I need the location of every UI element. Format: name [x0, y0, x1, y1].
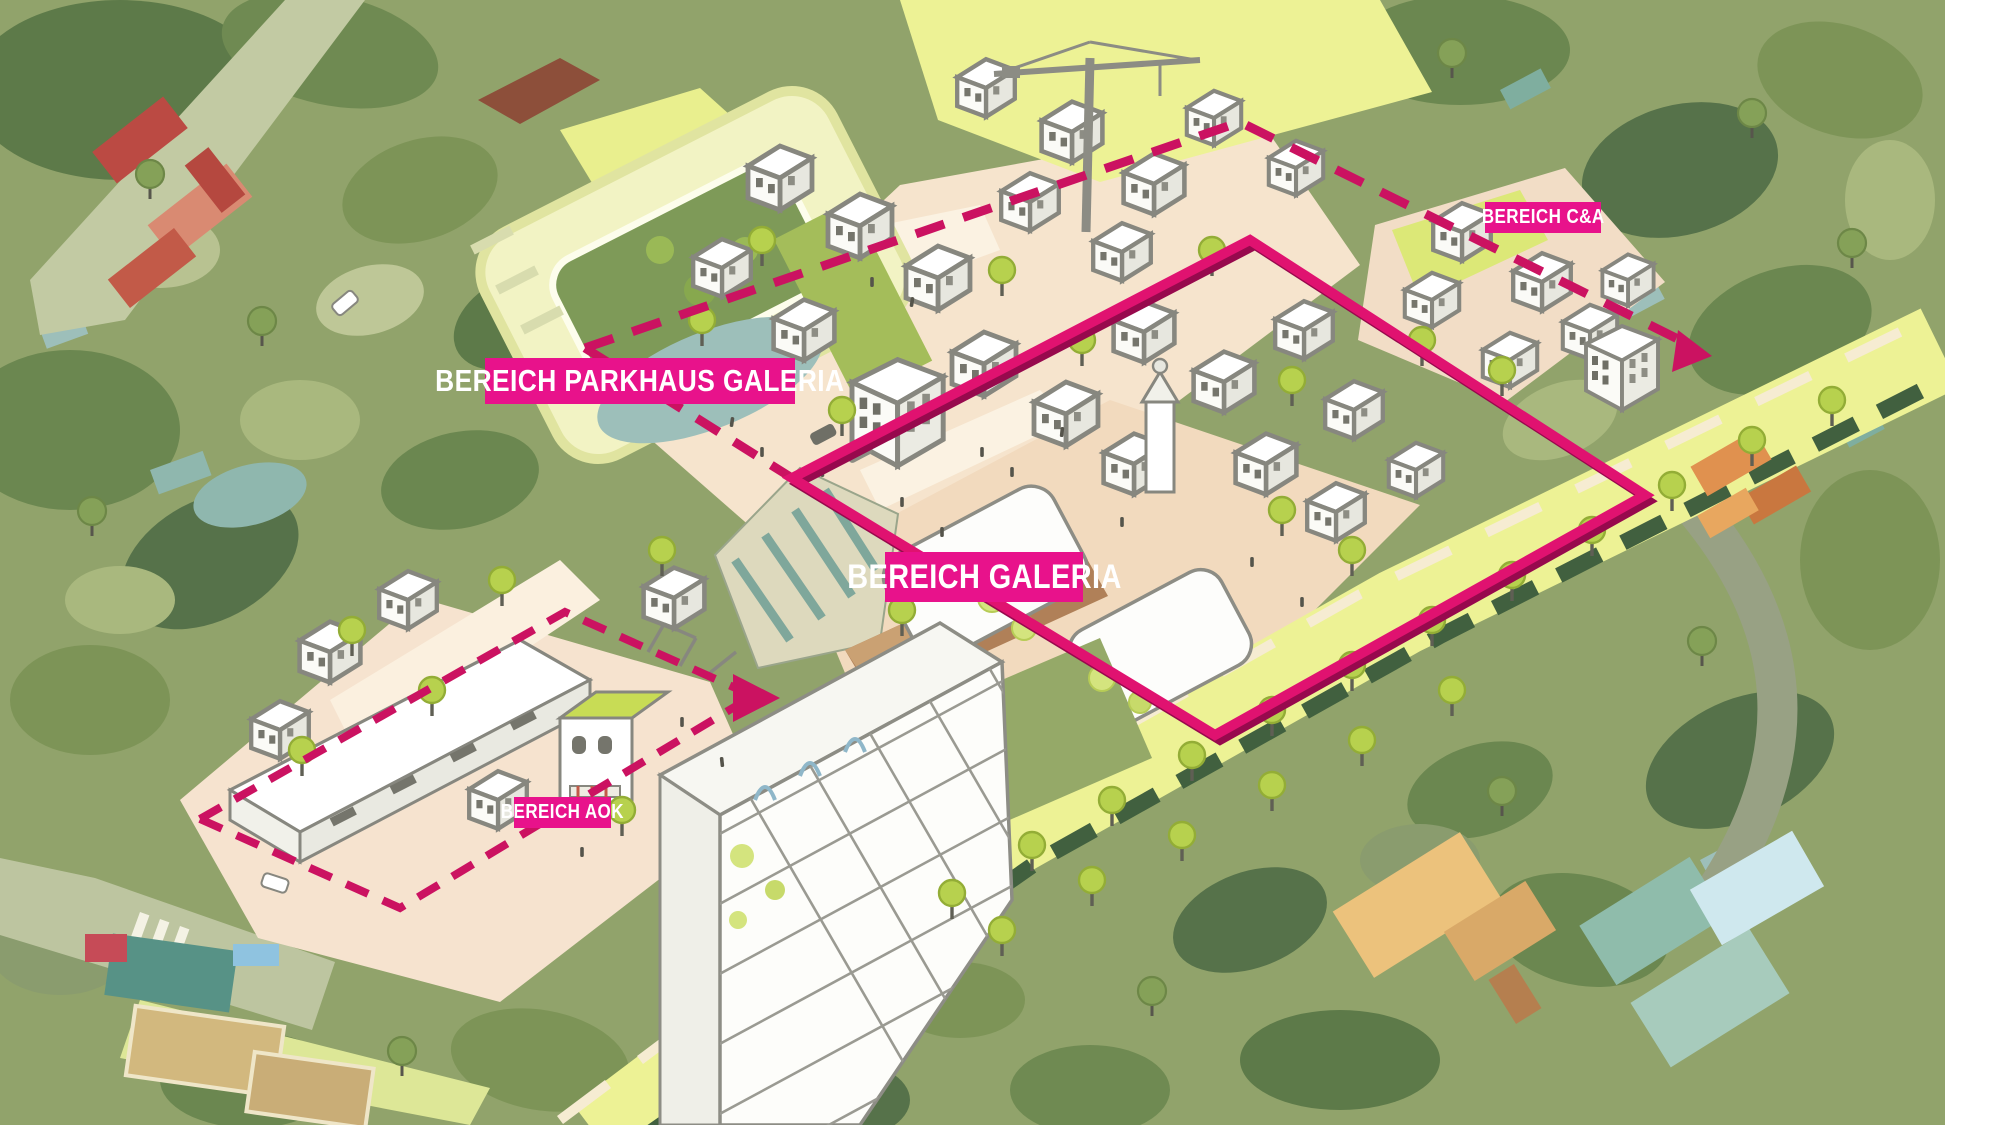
- region-label-text: BEREICH PARKHAUS GALERIA: [435, 363, 844, 399]
- region-label-c-und-a: BEREICH C&A: [1485, 202, 1601, 233]
- region-label-text: BEREICH C&A: [1482, 206, 1605, 229]
- region-label-parkhaus-galeria: BEREICH PARKHAUS GALERIA: [485, 358, 795, 404]
- region-label-galeria: BEREICH GALERIA: [885, 552, 1083, 602]
- region-label-text: BEREICH AOK: [501, 801, 624, 824]
- region-label-text: BEREICH GALERIA: [847, 558, 1122, 597]
- masterplan-image: BEREICH PARKHAUS GALERIA BEREICH GALERIA…: [0, 0, 2000, 1125]
- region-label-aok: BEREICH AOK: [514, 797, 611, 828]
- page-margin: [1945, 0, 2000, 1125]
